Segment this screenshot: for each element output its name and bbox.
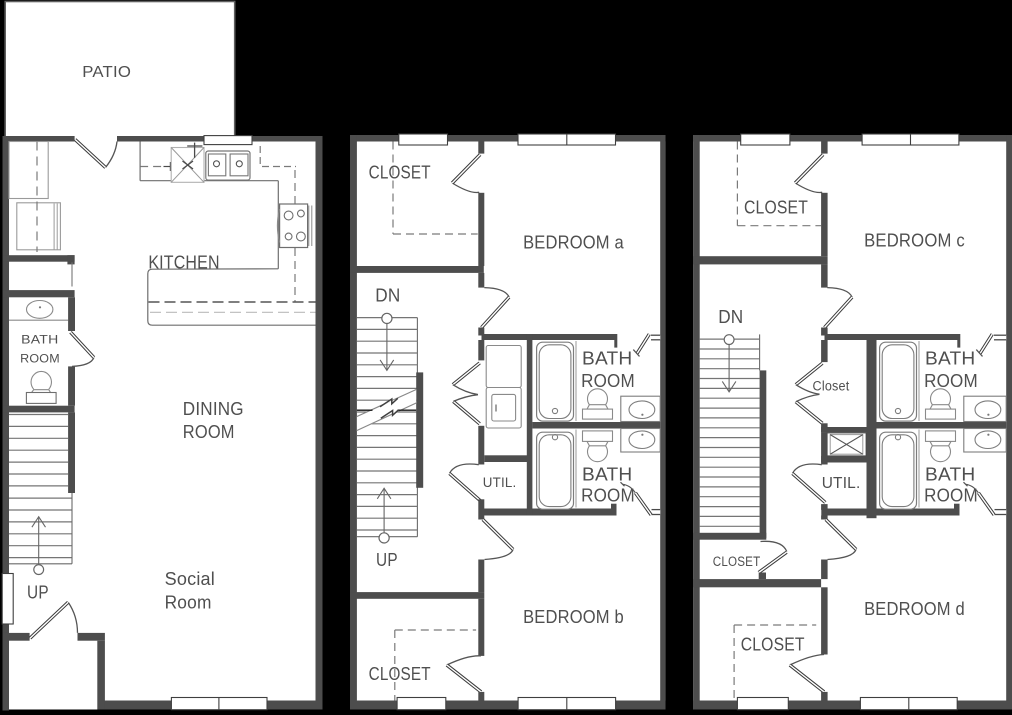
svg-text:UTIL.: UTIL. <box>483 474 517 490</box>
svg-text:Social: Social <box>165 569 215 589</box>
svg-text:ROOM: ROOM <box>581 485 635 505</box>
svg-text:BATH: BATH <box>582 464 632 484</box>
svg-text:UP: UP <box>376 550 398 570</box>
svg-text:BATH: BATH <box>925 464 975 484</box>
svg-text:BATH: BATH <box>21 332 58 346</box>
svg-text:CLOSET: CLOSET <box>741 635 805 655</box>
svg-text:CLOSET: CLOSET <box>713 554 761 569</box>
svg-text:PATIO: PATIO <box>82 64 131 81</box>
svg-text:CLOSET: CLOSET <box>744 198 808 218</box>
svg-text:DN: DN <box>375 285 400 305</box>
svg-text:BEDROOM c: BEDROOM c <box>864 230 965 250</box>
svg-text:DINING: DINING <box>183 399 244 419</box>
svg-text:CLOSET: CLOSET <box>369 664 431 684</box>
svg-text:Closet: Closet <box>813 378 850 393</box>
svg-text:DN: DN <box>718 307 743 327</box>
svg-text:BEDROOM a: BEDROOM a <box>523 232 625 252</box>
svg-text:Room: Room <box>165 593 212 613</box>
svg-text:ROOM: ROOM <box>924 371 978 391</box>
svg-text:BEDROOM b: BEDROOM b <box>523 607 624 627</box>
svg-text:BATH: BATH <box>925 348 975 368</box>
svg-text:UTIL.: UTIL. <box>822 475 861 492</box>
svg-text:BEDROOM d: BEDROOM d <box>864 599 965 619</box>
svg-text:UP: UP <box>27 582 49 602</box>
svg-text:ROOM: ROOM <box>581 371 635 391</box>
svg-text:ROOM: ROOM <box>20 352 60 366</box>
svg-text:ROOM: ROOM <box>924 485 978 505</box>
svg-text:BATH: BATH <box>582 348 632 368</box>
svg-text:ROOM: ROOM <box>183 422 235 442</box>
svg-text:CLOSET: CLOSET <box>369 163 431 183</box>
